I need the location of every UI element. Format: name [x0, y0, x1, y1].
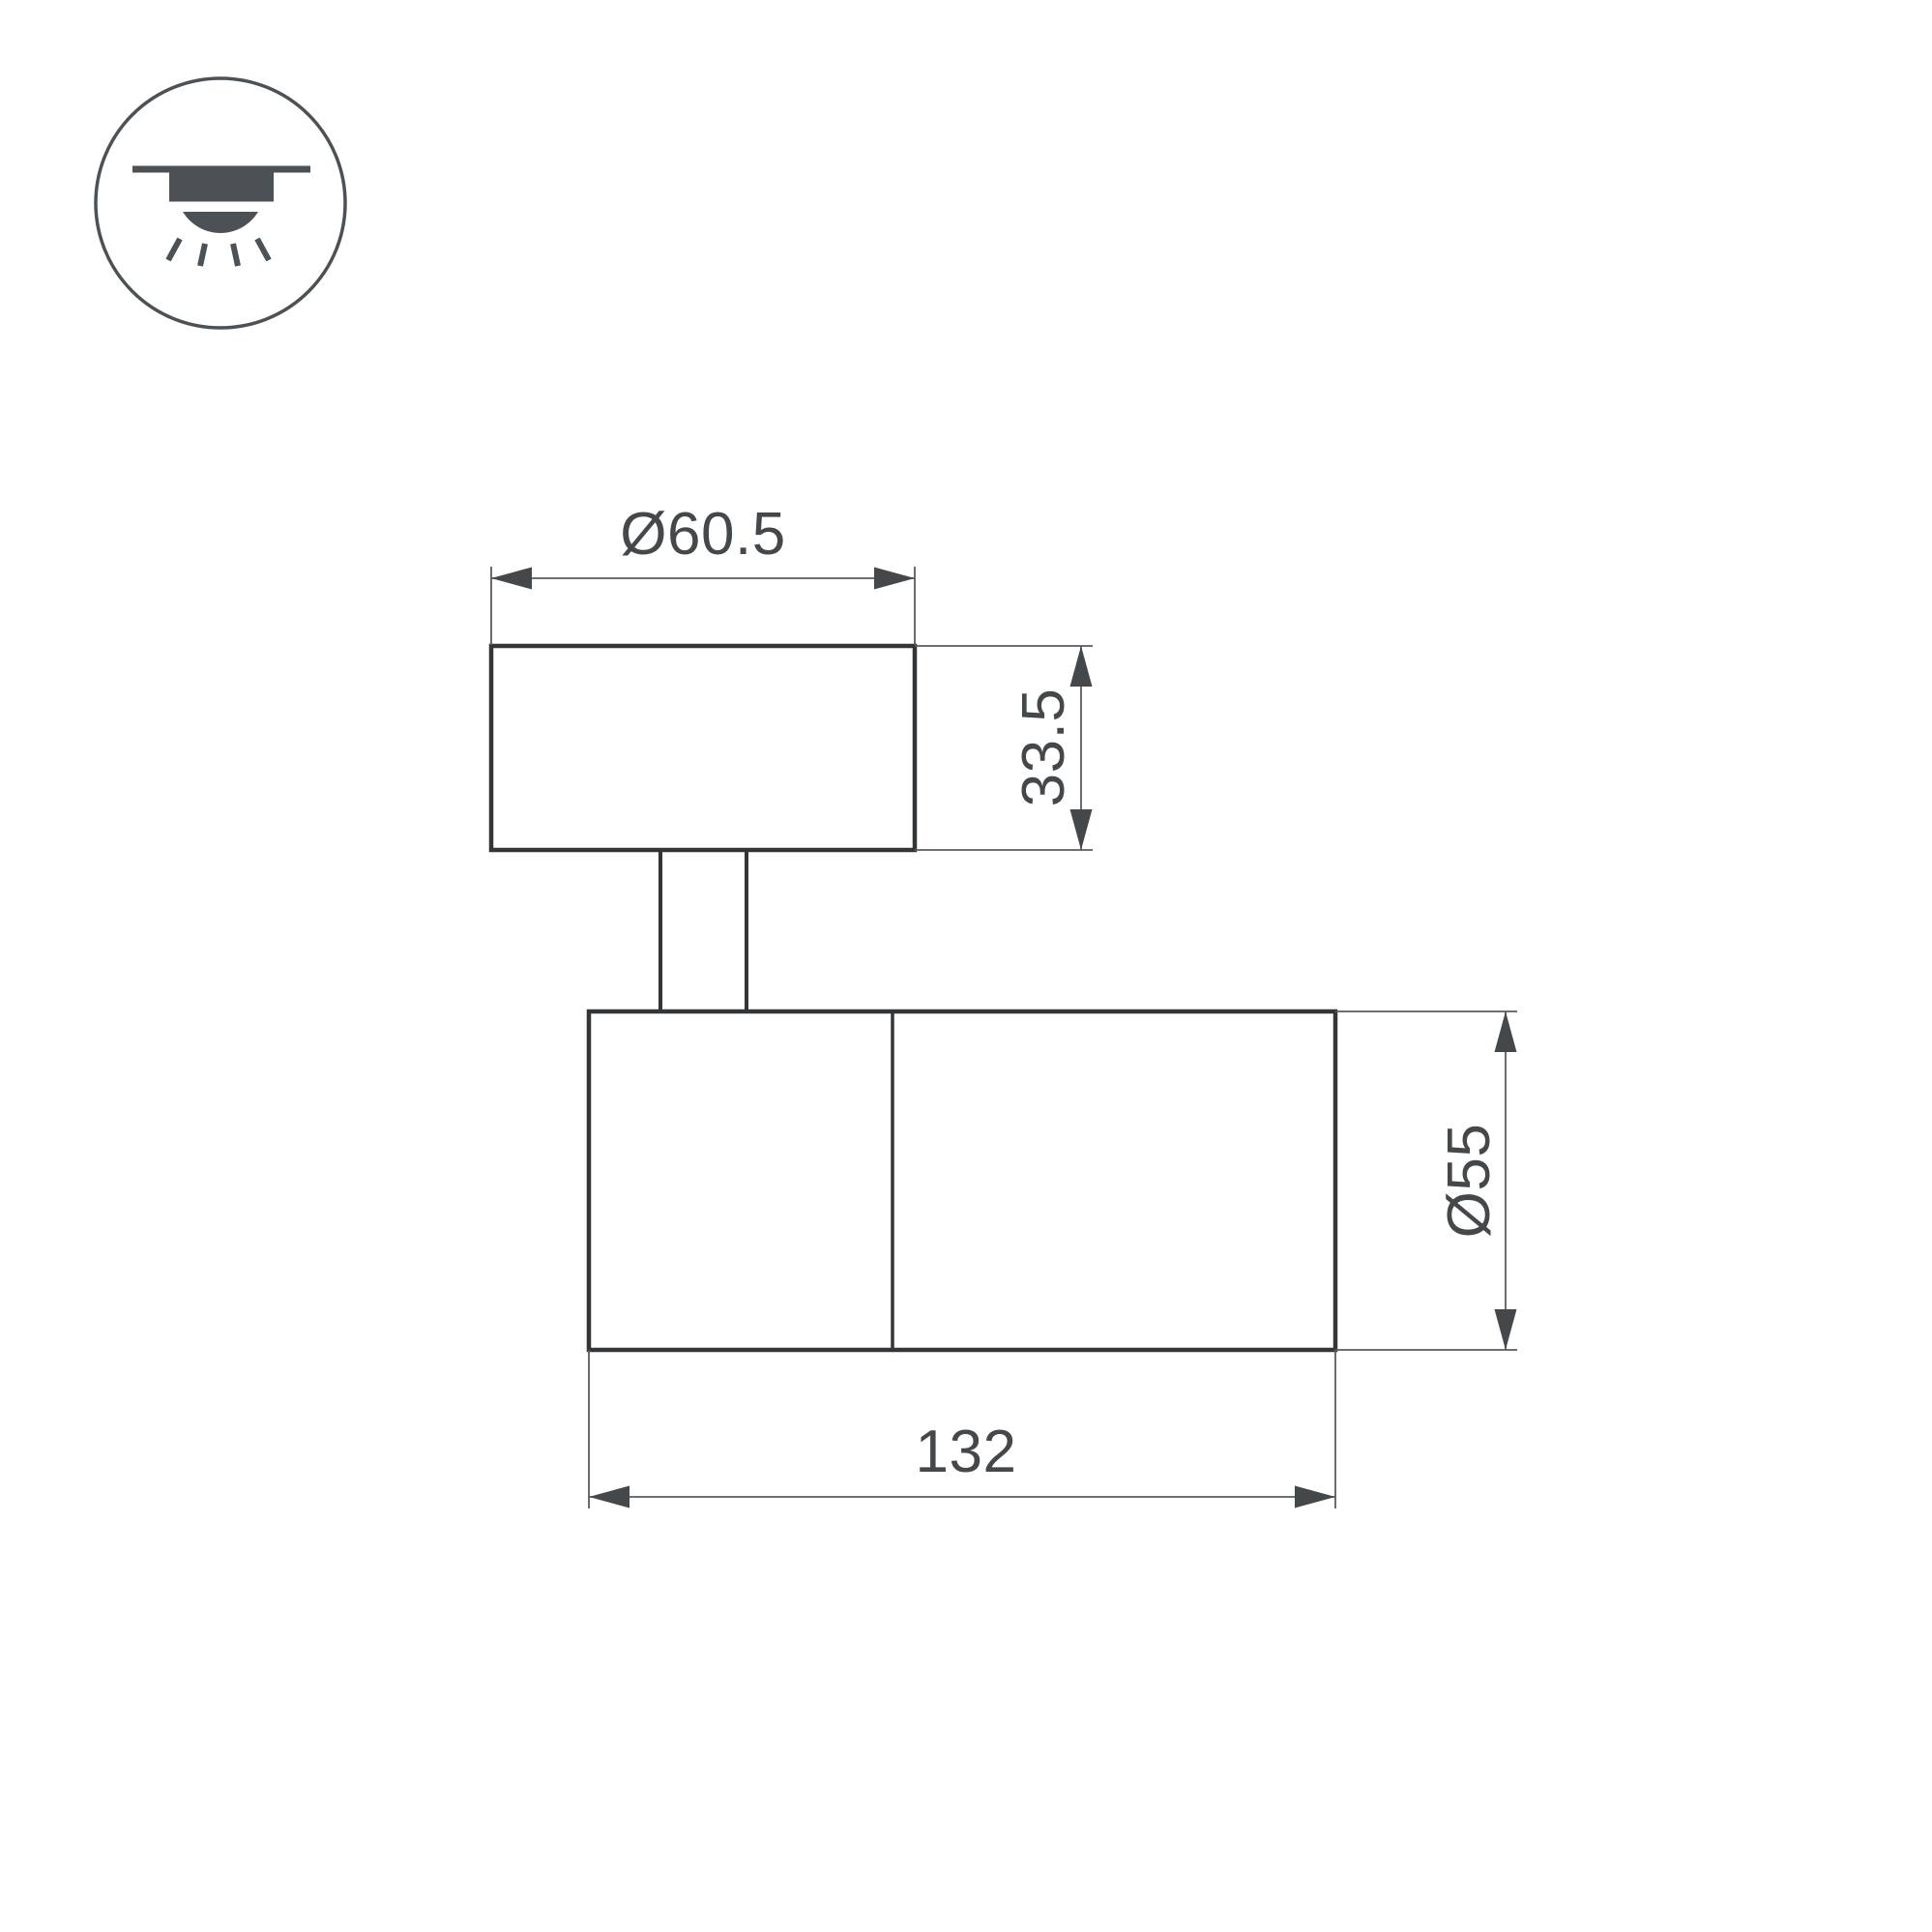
dim-label-body-diameter: Ø55 [1436, 1124, 1503, 1239]
dim-label-base-height: 33.5 [1010, 688, 1077, 807]
dim-label-top-diameter: Ø60.5 [620, 501, 785, 568]
arrowhead-left-icon [589, 1486, 629, 1508]
ceiling-mount-light-icon [96, 78, 345, 328]
icon-circle-border [96, 78, 345, 328]
icon-ray-3 [233, 244, 238, 266]
dim-label-body-length: 132 [916, 1419, 1017, 1485]
dimension-body-diameter: Ø55 [1335, 1011, 1517, 1350]
icon-light-dome [183, 212, 258, 233]
dimension-body-length: 132 [589, 1350, 1335, 1508]
luminaire-technical-drawing: Ø60.5 33.5 Ø55 132 [0, 0, 1932, 1932]
dimension-base-height: 33.5 [915, 646, 1093, 850]
icon-ray-2 [200, 244, 205, 266]
icon-light-rays [168, 239, 269, 266]
arrowhead-up-icon [1495, 1011, 1517, 1052]
arrowhead-up-icon [1070, 646, 1093, 687]
arrowhead-left-icon [491, 568, 532, 590]
arrowhead-right-icon [1295, 1486, 1335, 1508]
arrowhead-down-icon [1495, 1309, 1517, 1350]
fixture-outline [491, 646, 1335, 1350]
icon-ray-4 [257, 239, 269, 260]
arrowhead-down-icon [1070, 809, 1093, 850]
drawing-canvas: Ø60.5 33.5 Ø55 132 [0, 0, 1932, 1932]
arrowhead-right-icon [874, 568, 915, 590]
mounting-base-rect [491, 646, 915, 850]
lamp-body-rect [589, 1011, 1335, 1350]
icon-fixture-housing [169, 166, 274, 202]
dimension-top-diameter: Ø60.5 [491, 501, 915, 645]
icon-ray-1 [168, 239, 180, 260]
